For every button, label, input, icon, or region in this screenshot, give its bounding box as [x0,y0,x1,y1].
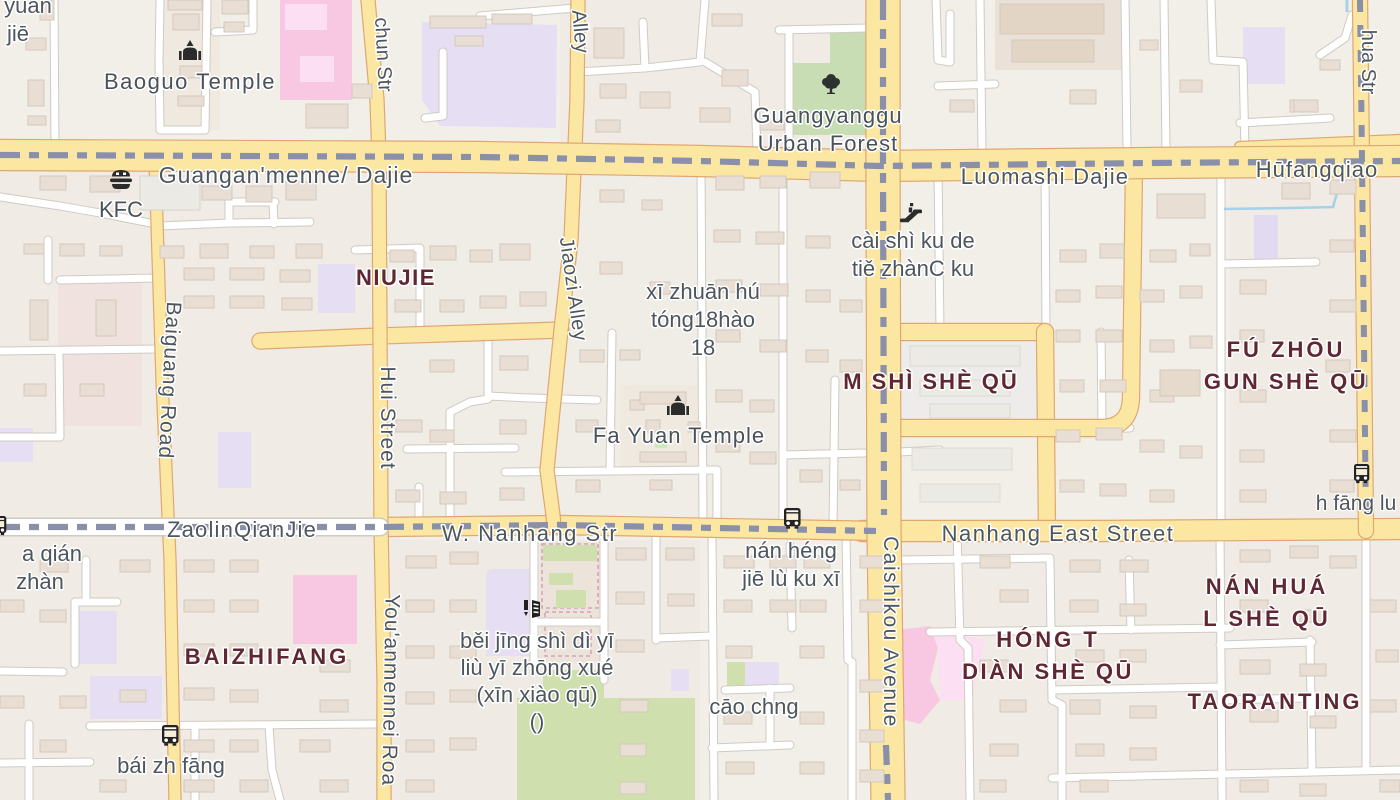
svg-text:liù yī zhōng xué: liù yī zhōng xué [461,655,614,680]
svg-text:NIUJIE: NIUJIE [356,265,436,290]
svg-text:a qián: a qián [22,541,82,566]
svg-text:(xīn xiào qū): (xīn xiào qū) [476,682,597,707]
svg-text:jiē: jiē [6,21,29,46]
svg-text:Guangan'menne/ Dajie: Guangan'menne/ Dajie [159,162,414,188]
svg-text:(): () [530,709,545,734]
svg-text:Luomashi Dajie: Luomashi Dajie [961,164,1129,189]
svg-text:cài shì ku de: cài shì ku de [851,228,975,253]
svg-text:NÁN HUÁ: NÁN HUÁ [1206,574,1328,599]
svg-text:DIÀN SHÈ QŪ: DIÀN SHÈ QŪ [962,659,1134,684]
svg-text:KFC: KFC [99,197,143,222]
svg-text:L SHÈ QŪ: L SHÈ QŪ [1203,606,1331,631]
svg-text:bái zh fāng: bái zh fāng [117,753,225,778]
svg-text:Caishikou Avenue: Caishikou Avenue [879,536,902,728]
svg-text:Hūfangqiao: Hūfangqiao [1256,157,1379,182]
svg-text:hua Str: hua Str [1357,30,1379,95]
svg-text:ZaolinQianJie: ZaolinQianJie [167,517,317,542]
svg-text:TAORANTING: TAORANTING [1187,689,1362,714]
svg-text:Urban Forest: Urban Forest [758,131,898,156]
svg-text:Fa Yuan Temple: Fa Yuan Temple [593,423,765,448]
svg-text:cāo chng: cāo chng [709,694,798,719]
svg-text:You'anmennei Roa: You'anmennei Roa [377,594,403,786]
svg-text:HÓNG T: HÓNG T [996,627,1100,652]
svg-text:Baoguo Temple: Baoguo Temple [104,69,276,94]
svg-text:Hui Street: Hui Street [376,366,399,469]
svg-text:Nanhang East Street: Nanhang East Street [942,521,1175,546]
svg-text:Guangyanggu: Guangyanggu [753,103,902,128]
svg-text:tóng18hào: tóng18hào [651,307,755,332]
svg-text:Alley: Alley [567,9,593,54]
svg-text:M SHÌ SHÈ QŪ: M SHÌ SHÈ QŪ [843,369,1019,394]
svg-text:FÚ ZHŌU: FÚ ZHŌU [1227,337,1346,362]
svg-text:běi jīng shì dì yī: běi jīng shì dì yī [460,628,615,653]
svg-text:18: 18 [691,335,715,360]
svg-text:BAIZHIFANG: BAIZHIFANG [185,644,349,669]
svg-text:tiě zhànC ku: tiě zhànC ku [852,256,974,281]
svg-text:nán héng: nán héng [745,538,837,563]
svg-text:h fāng lu: h fāng lu [1316,492,1397,515]
svg-text:zhàn: zhàn [16,569,64,594]
svg-text:chun Str: chun Str [370,17,396,93]
svg-text:W. Nanhang Str: W. Nanhang Str [442,521,618,546]
svg-text:jiē lù ku xī: jiē lù ku xī [741,566,841,591]
svg-text:yuan: yuan [4,0,52,18]
svg-text:xī zhuān hú: xī zhuān hú [646,279,760,304]
svg-text:GUN SHÈ QŪ: GUN SHÈ QŪ [1204,369,1368,394]
